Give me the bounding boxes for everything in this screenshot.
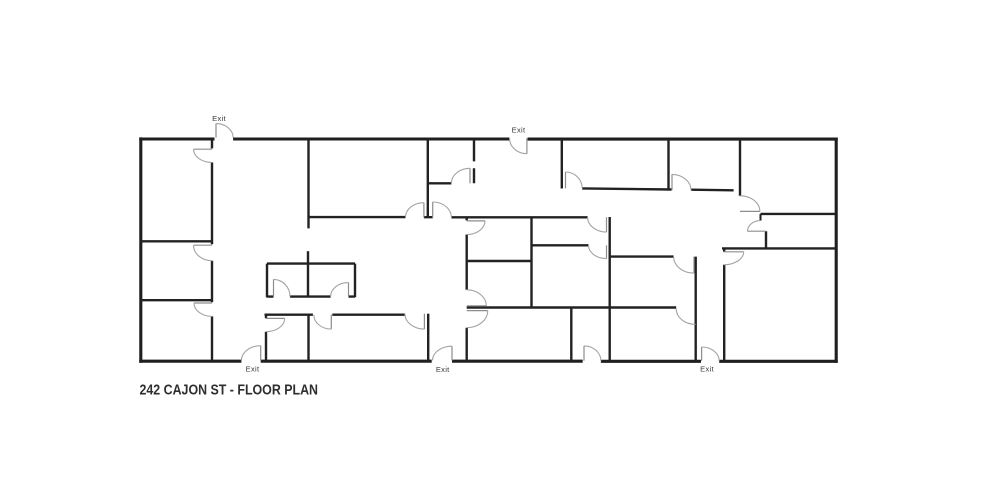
svg-text:242 CAJON ST - FLOOR PLAN: 242 CAJON ST - FLOOR PLAN (140, 383, 319, 399)
svg-text:Exit: Exit (246, 365, 260, 374)
svg-text:Exit: Exit (700, 365, 714, 374)
svg-text:Exit: Exit (212, 114, 226, 123)
svg-text:Exit: Exit (436, 365, 450, 374)
svg-text:Exit: Exit (512, 126, 526, 135)
